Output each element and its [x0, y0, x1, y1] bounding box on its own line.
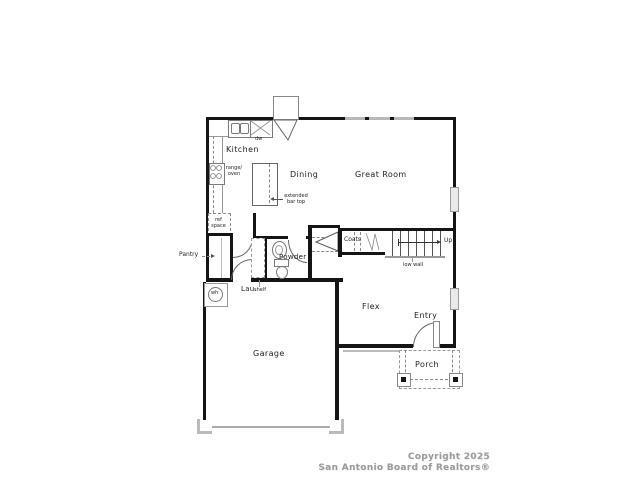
up-label: Up — [444, 238, 452, 245]
powder-label: Powder — [279, 254, 306, 262]
bar-top-leader — [274, 199, 283, 200]
laundry-label: Lau. — [241, 286, 257, 294]
range-oven-label: range/ oven — [225, 166, 243, 177]
porch-column-core — [401, 377, 406, 382]
stairs — [385, 231, 445, 256]
garage-cap-right-h — [329, 431, 344, 434]
window-mullion — [390, 117, 394, 120]
wall-powder-right — [308, 225, 312, 282]
laundry-shelf — [251, 238, 265, 278]
shelf-leader — [259, 280, 260, 287]
laundry-door-swing-arc — [231, 259, 252, 280]
porch-inner-dash-bottom — [405, 379, 453, 380]
hall-door-swing-arc — [233, 238, 253, 258]
stairs-arrow-tick — [398, 239, 399, 246]
organization-line: San Antonio Board of Realtors® — [300, 463, 490, 474]
dishwasher-label: dw — [255, 137, 262, 143]
entry-label: Entry — [414, 312, 437, 321]
wall-stub-hall — [253, 213, 256, 236]
garage-label: Garage — [253, 350, 285, 359]
wall-flex-bottom — [338, 344, 413, 348]
wall-garage-top-a — [206, 278, 231, 282]
floor-plan: dw range/ oven ref space extended bar to… — [0, 0, 640, 480]
great-room-label: Great Room — [355, 171, 407, 180]
water-heater-label: wh — [211, 291, 218, 297]
sink-basin-right — [240, 123, 249, 134]
hall-door-swing-icon — [314, 231, 340, 253]
pantry-leader — [202, 256, 210, 257]
wall-garage-right — [335, 282, 339, 420]
entry-door-leaf — [433, 321, 440, 348]
copyright-block: Copyright 2025 San Antonio Board of Real… — [300, 452, 490, 474]
stairs-up-arrow-icon — [437, 240, 441, 244]
garage-door-line — [212, 426, 330, 428]
wall-top-right — [414, 117, 456, 120]
window-run-top — [345, 117, 415, 120]
wall-closet-bottom — [338, 252, 385, 255]
pantry-arrow-icon — [211, 254, 215, 258]
pantry-shelf-line — [221, 238, 222, 278]
extended-bar-top-label: extended bar top — [284, 194, 308, 205]
rear-stoop — [273, 96, 299, 120]
wall-top-mid — [297, 117, 345, 120]
porch-column-core — [453, 377, 458, 382]
range-burners-icon — [209, 163, 223, 183]
wall-hall-top — [312, 225, 340, 228]
rear-door-swing-icon — [272, 119, 300, 143]
wall-left — [206, 117, 209, 282]
low-wall-label: low wall — [403, 263, 423, 269]
low-wall-line — [385, 256, 445, 258]
pantry-label: Pantry — [179, 252, 198, 259]
copyright-line: Copyright 2025 — [300, 452, 490, 463]
garage-cap-left-h — [197, 431, 212, 434]
dishwasher-x-icon — [250, 120, 271, 136]
coats-label: Coats — [344, 237, 361, 244]
window-great-room — [450, 187, 459, 212]
wall-right — [453, 117, 456, 347]
sink-basin-left — [231, 123, 240, 134]
window-flex — [450, 288, 459, 310]
window-mullion — [365, 117, 369, 120]
closet-clothes-icon — [364, 232, 384, 252]
wall-kitchen-bottom — [206, 233, 233, 236]
wall-garage-top-b — [251, 278, 343, 282]
flex-label: Flex — [362, 303, 380, 312]
porch-label: Porch — [415, 361, 439, 370]
kitchen-label: Kitchen — [226, 146, 259, 155]
stairs-up-arrow-line — [398, 242, 438, 243]
dining-label: Dining — [290, 171, 318, 180]
ref-space-label: ref space — [210, 218, 227, 229]
walkway-line — [343, 350, 399, 352]
